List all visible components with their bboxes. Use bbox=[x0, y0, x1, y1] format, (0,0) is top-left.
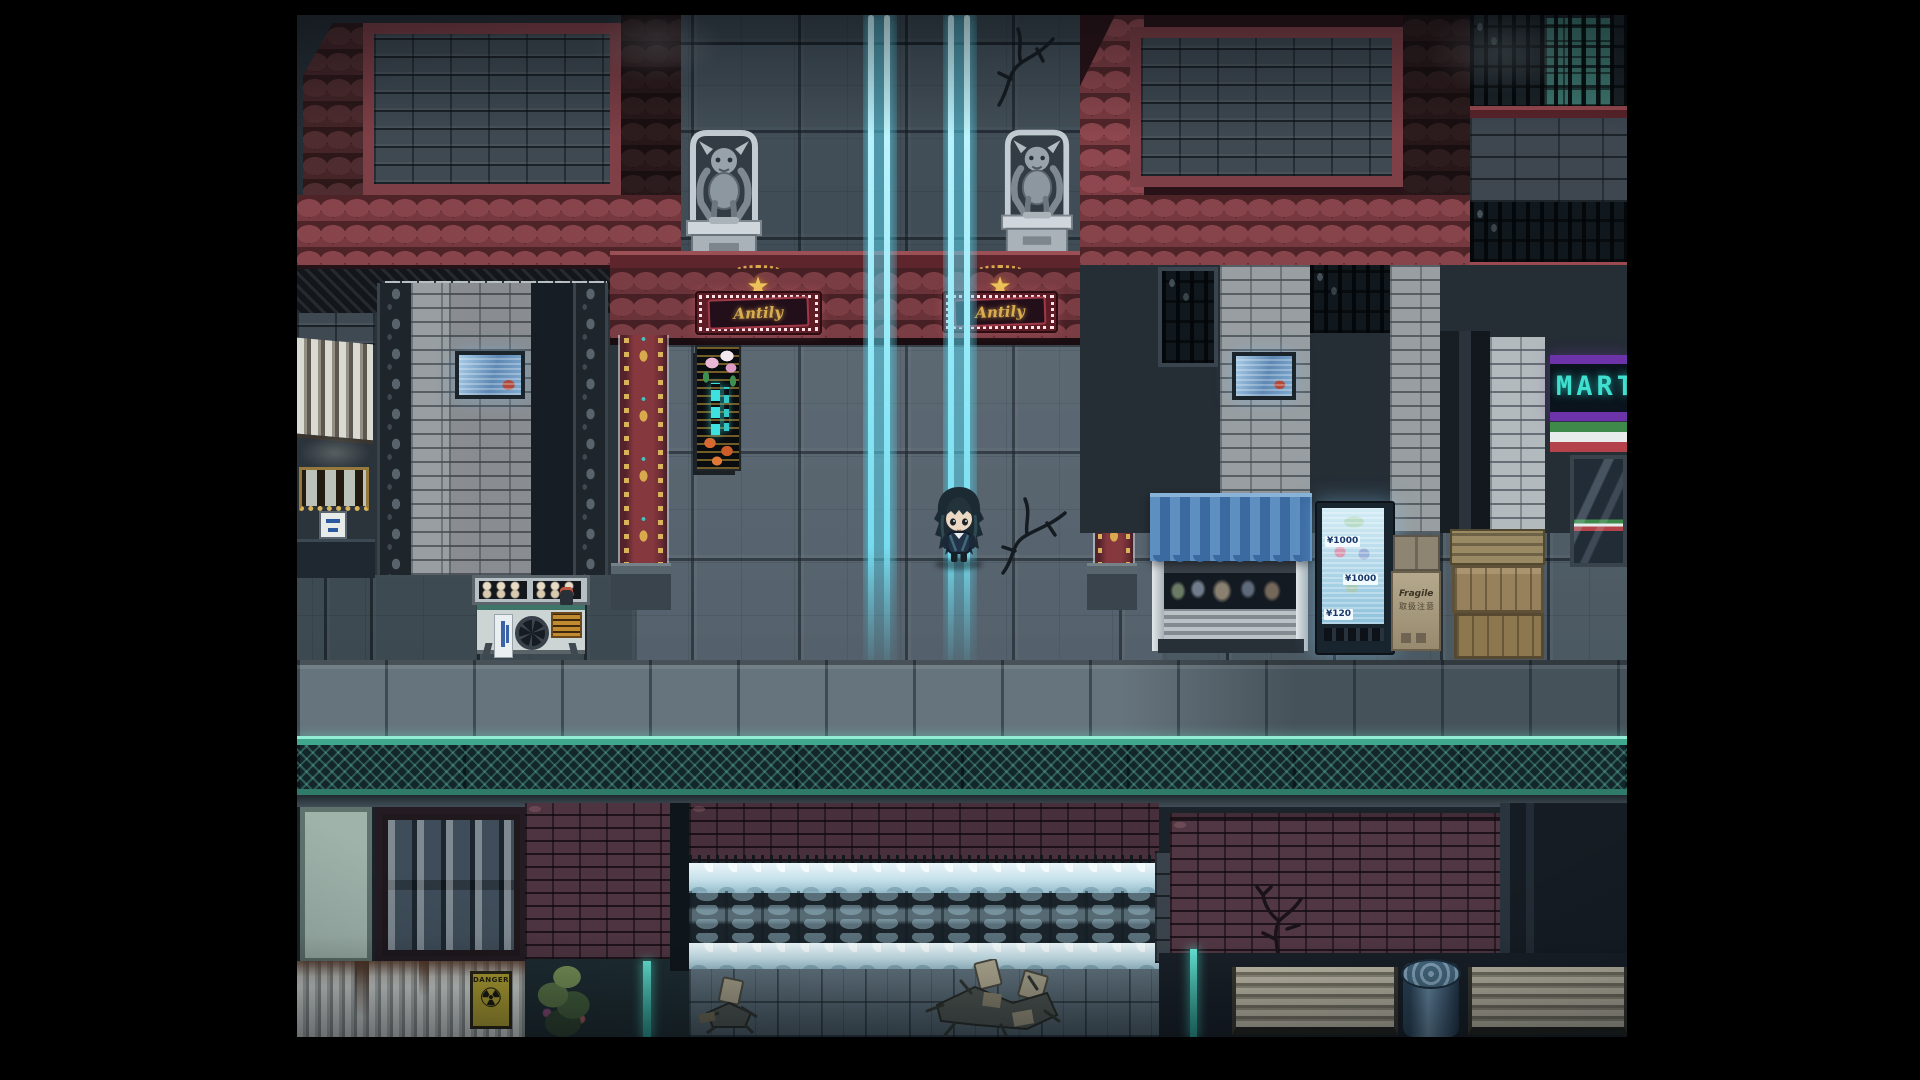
gate-pillar-base-left bbox=[611, 563, 671, 610]
wall-crack-top bbox=[991, 23, 1061, 113]
metal-door bbox=[300, 807, 372, 963]
cart-wheel bbox=[515, 616, 549, 650]
roof-courtyard bbox=[374, 34, 610, 184]
fence-rail-top bbox=[297, 736, 1627, 745]
white-brick-panel-2 bbox=[1390, 265, 1440, 533]
junk-pile-large bbox=[917, 959, 1065, 1037]
screen-image bbox=[459, 355, 521, 395]
beam-line bbox=[868, 15, 874, 680]
dark-pillar-band bbox=[1440, 331, 1490, 533]
danger-sign: DANGER ☢ bbox=[470, 971, 512, 1029]
handling-label: 取扱注意 bbox=[1399, 601, 1439, 612]
right-brick-wall bbox=[1170, 813, 1500, 972]
wooden-crate-1 bbox=[1452, 565, 1544, 613]
kiosk-post-right bbox=[1296, 553, 1308, 651]
smoke-wisp-left bbox=[592, 15, 722, 81]
store-neon-text: MART bbox=[1556, 371, 1627, 402]
neon-floor-strip-left bbox=[643, 961, 651, 1037]
white-column-1 bbox=[411, 283, 449, 575]
stone-band bbox=[1470, 118, 1627, 202]
striped-awning bbox=[297, 338, 373, 445]
beam-line bbox=[964, 15, 970, 680]
plank-stack bbox=[1450, 529, 1545, 565]
kiosk bbox=[1150, 493, 1312, 655]
street-screen-left bbox=[455, 351, 525, 399]
shop-small-sign bbox=[319, 511, 347, 539]
roof-front bbox=[1080, 195, 1470, 272]
smoke-wisp-right bbox=[1427, 15, 1577, 93]
vending-machine[interactable]: ¥1000 ¥1000 ¥120 bbox=[1315, 501, 1395, 655]
neon-floor-strip-right bbox=[1190, 949, 1197, 1037]
kiosk-interior bbox=[1164, 561, 1296, 609]
marquee-sign-left: Antily bbox=[695, 291, 822, 335]
far-right-structure bbox=[1500, 803, 1627, 953]
food-cart bbox=[472, 573, 592, 657]
price-label-3: ¥120 bbox=[1324, 609, 1353, 620]
left-brick-wall bbox=[525, 803, 690, 965]
light-beam-left bbox=[863, 15, 897, 680]
jar-display-stand bbox=[299, 467, 369, 511]
lattice-door bbox=[1158, 267, 1218, 367]
box-mark-squares bbox=[1401, 633, 1427, 643]
junk-pile-small bbox=[695, 973, 767, 1035]
cart-menu-sign bbox=[551, 612, 582, 638]
wall-crack-mid bbox=[997, 493, 1073, 579]
price-label-2: ¥1000 bbox=[1343, 574, 1378, 585]
lattice-window-band bbox=[1310, 265, 1390, 333]
kiosk-shutter bbox=[1164, 609, 1296, 639]
fragile-label: Fragile bbox=[1399, 589, 1439, 599]
beam-line bbox=[884, 15, 890, 680]
neon-glyph-column-2 bbox=[724, 387, 729, 431]
store-stripes bbox=[1550, 422, 1627, 452]
canal-edge-pillar-left bbox=[670, 803, 690, 971]
window-glass bbox=[388, 820, 514, 950]
neon-flower-sign bbox=[695, 345, 741, 471]
building-right-roofblock bbox=[1080, 15, 1470, 273]
store-window bbox=[1570, 455, 1627, 567]
carved-pillar-1 bbox=[377, 283, 415, 575]
screen-recess bbox=[449, 283, 531, 575]
vending-slots bbox=[1324, 628, 1384, 641]
carved-pillar-2 bbox=[573, 283, 608, 575]
green-junk-heap bbox=[533, 961, 597, 1037]
player-character[interactable] bbox=[929, 485, 989, 569]
canal-brick-band bbox=[689, 803, 1159, 861]
kiosk-post-left bbox=[1152, 553, 1164, 651]
store-neon-sign: MART bbox=[1550, 355, 1627, 421]
chain-link-fence bbox=[297, 745, 1627, 789]
dark-recess bbox=[531, 283, 573, 575]
store-brick-wall bbox=[1490, 337, 1545, 533]
trash-can-lid bbox=[1401, 959, 1461, 989]
shop-glow bbox=[299, 435, 371, 471]
gargoyle-statue-left bbox=[685, 125, 763, 267]
cart-lamp bbox=[560, 587, 573, 607]
gate-pillar-left bbox=[618, 335, 669, 567]
shop-table bbox=[297, 539, 375, 578]
game-canvas[interactable]: ★ Antily ★ Antily bbox=[297, 15, 1627, 1037]
marquee-text: Antily bbox=[708, 296, 809, 329]
price-label-1: ¥1000 bbox=[1325, 536, 1360, 547]
gargoyle-statue-right bbox=[999, 125, 1075, 259]
roof-left-slope bbox=[303, 23, 369, 199]
wooden-crate-2 bbox=[1454, 613, 1544, 659]
game-window: ★ Antily ★ Antily bbox=[0, 0, 1920, 1080]
kiosk-awning bbox=[1150, 493, 1312, 561]
waterfall-foam-top bbox=[689, 863, 1159, 893]
iron-fence-band-2 bbox=[1470, 202, 1627, 262]
dumpling-pan-left bbox=[479, 581, 527, 599]
roof-frame bbox=[363, 23, 621, 195]
paned-window bbox=[375, 807, 527, 963]
light-beam-right bbox=[943, 15, 977, 680]
dumpling-pan-right bbox=[533, 581, 581, 599]
cardboard-box-top bbox=[1393, 535, 1440, 571]
kiosk-base bbox=[1158, 639, 1304, 653]
bench-left[interactable] bbox=[1232, 967, 1398, 1035]
kiosk-awning-scallop bbox=[1150, 555, 1312, 565]
screen-image bbox=[1236, 356, 1292, 396]
radiation-icon: ☢ bbox=[473, 984, 509, 1014]
wall-footing bbox=[297, 660, 1627, 736]
facade-left bbox=[297, 313, 639, 575]
beam-line bbox=[948, 15, 954, 680]
rusted-shutter: DANGER ☢ bbox=[297, 961, 530, 1037]
cart-banner-flag bbox=[494, 614, 513, 658]
neon-glyph-column bbox=[711, 383, 720, 435]
cardboard-box-big: Fragile 取扱注意 bbox=[1391, 571, 1441, 651]
trash-can[interactable] bbox=[1403, 963, 1459, 1037]
gate-pillar-base-right bbox=[1087, 563, 1137, 610]
waterfall-cascade bbox=[689, 891, 1159, 947]
vending-screen bbox=[1322, 508, 1384, 624]
red-rail-1 bbox=[1470, 106, 1627, 118]
bench-right[interactable] bbox=[1468, 967, 1627, 1035]
roof-frame bbox=[1130, 27, 1403, 187]
roof-courtyard bbox=[1141, 38, 1392, 176]
street-screen-right bbox=[1232, 352, 1296, 400]
